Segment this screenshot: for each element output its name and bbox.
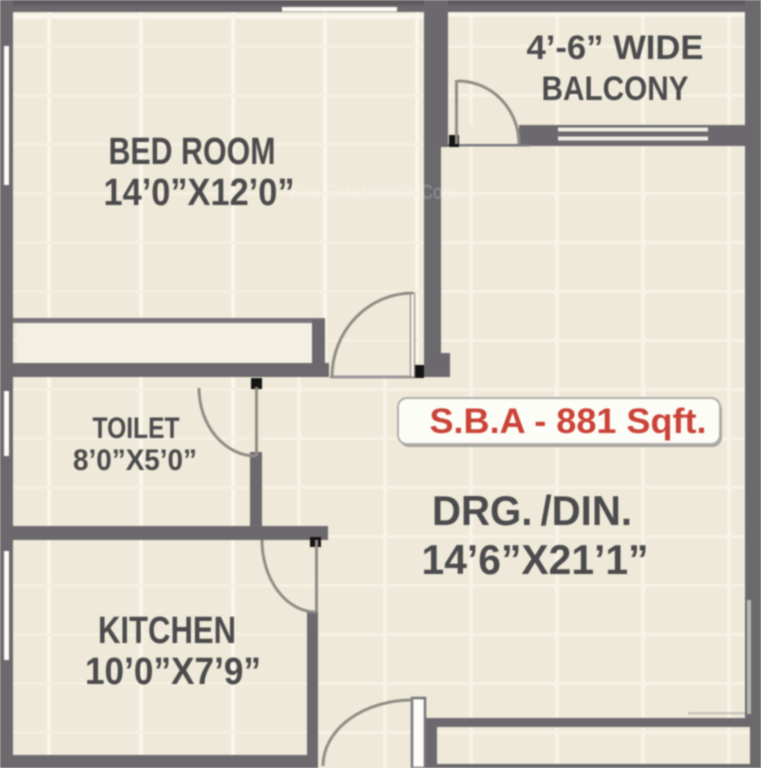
svg-text:RealEstateIndia.Com: RealEstateIndia.Com — [290, 181, 458, 204]
svg-text:14’0”X12’0”: 14’0”X12’0” — [104, 172, 295, 214]
svg-text:8’0”X5’0”: 8’0”X5’0” — [73, 444, 197, 477]
svg-text:BALCONY: BALCONY — [542, 70, 689, 108]
svg-text:KITCHEN: KITCHEN — [98, 610, 236, 652]
svg-text:DRG. /DIN.: DRG. /DIN. — [432, 487, 632, 534]
svg-text:S.B.A - 881 Sqft.: S.B.A - 881 Sqft. — [430, 402, 707, 441]
svg-text:TOILET: TOILET — [93, 412, 180, 445]
svg-text:BED ROOM: BED ROOM — [109, 131, 276, 173]
svg-text:4’-6” WIDE: 4’-6” WIDE — [527, 29, 704, 67]
svg-text:14’6”X21’1”: 14’6”X21’1” — [422, 536, 649, 583]
svg-text:10’0”X7’9”: 10’0”X7’9” — [85, 651, 261, 693]
